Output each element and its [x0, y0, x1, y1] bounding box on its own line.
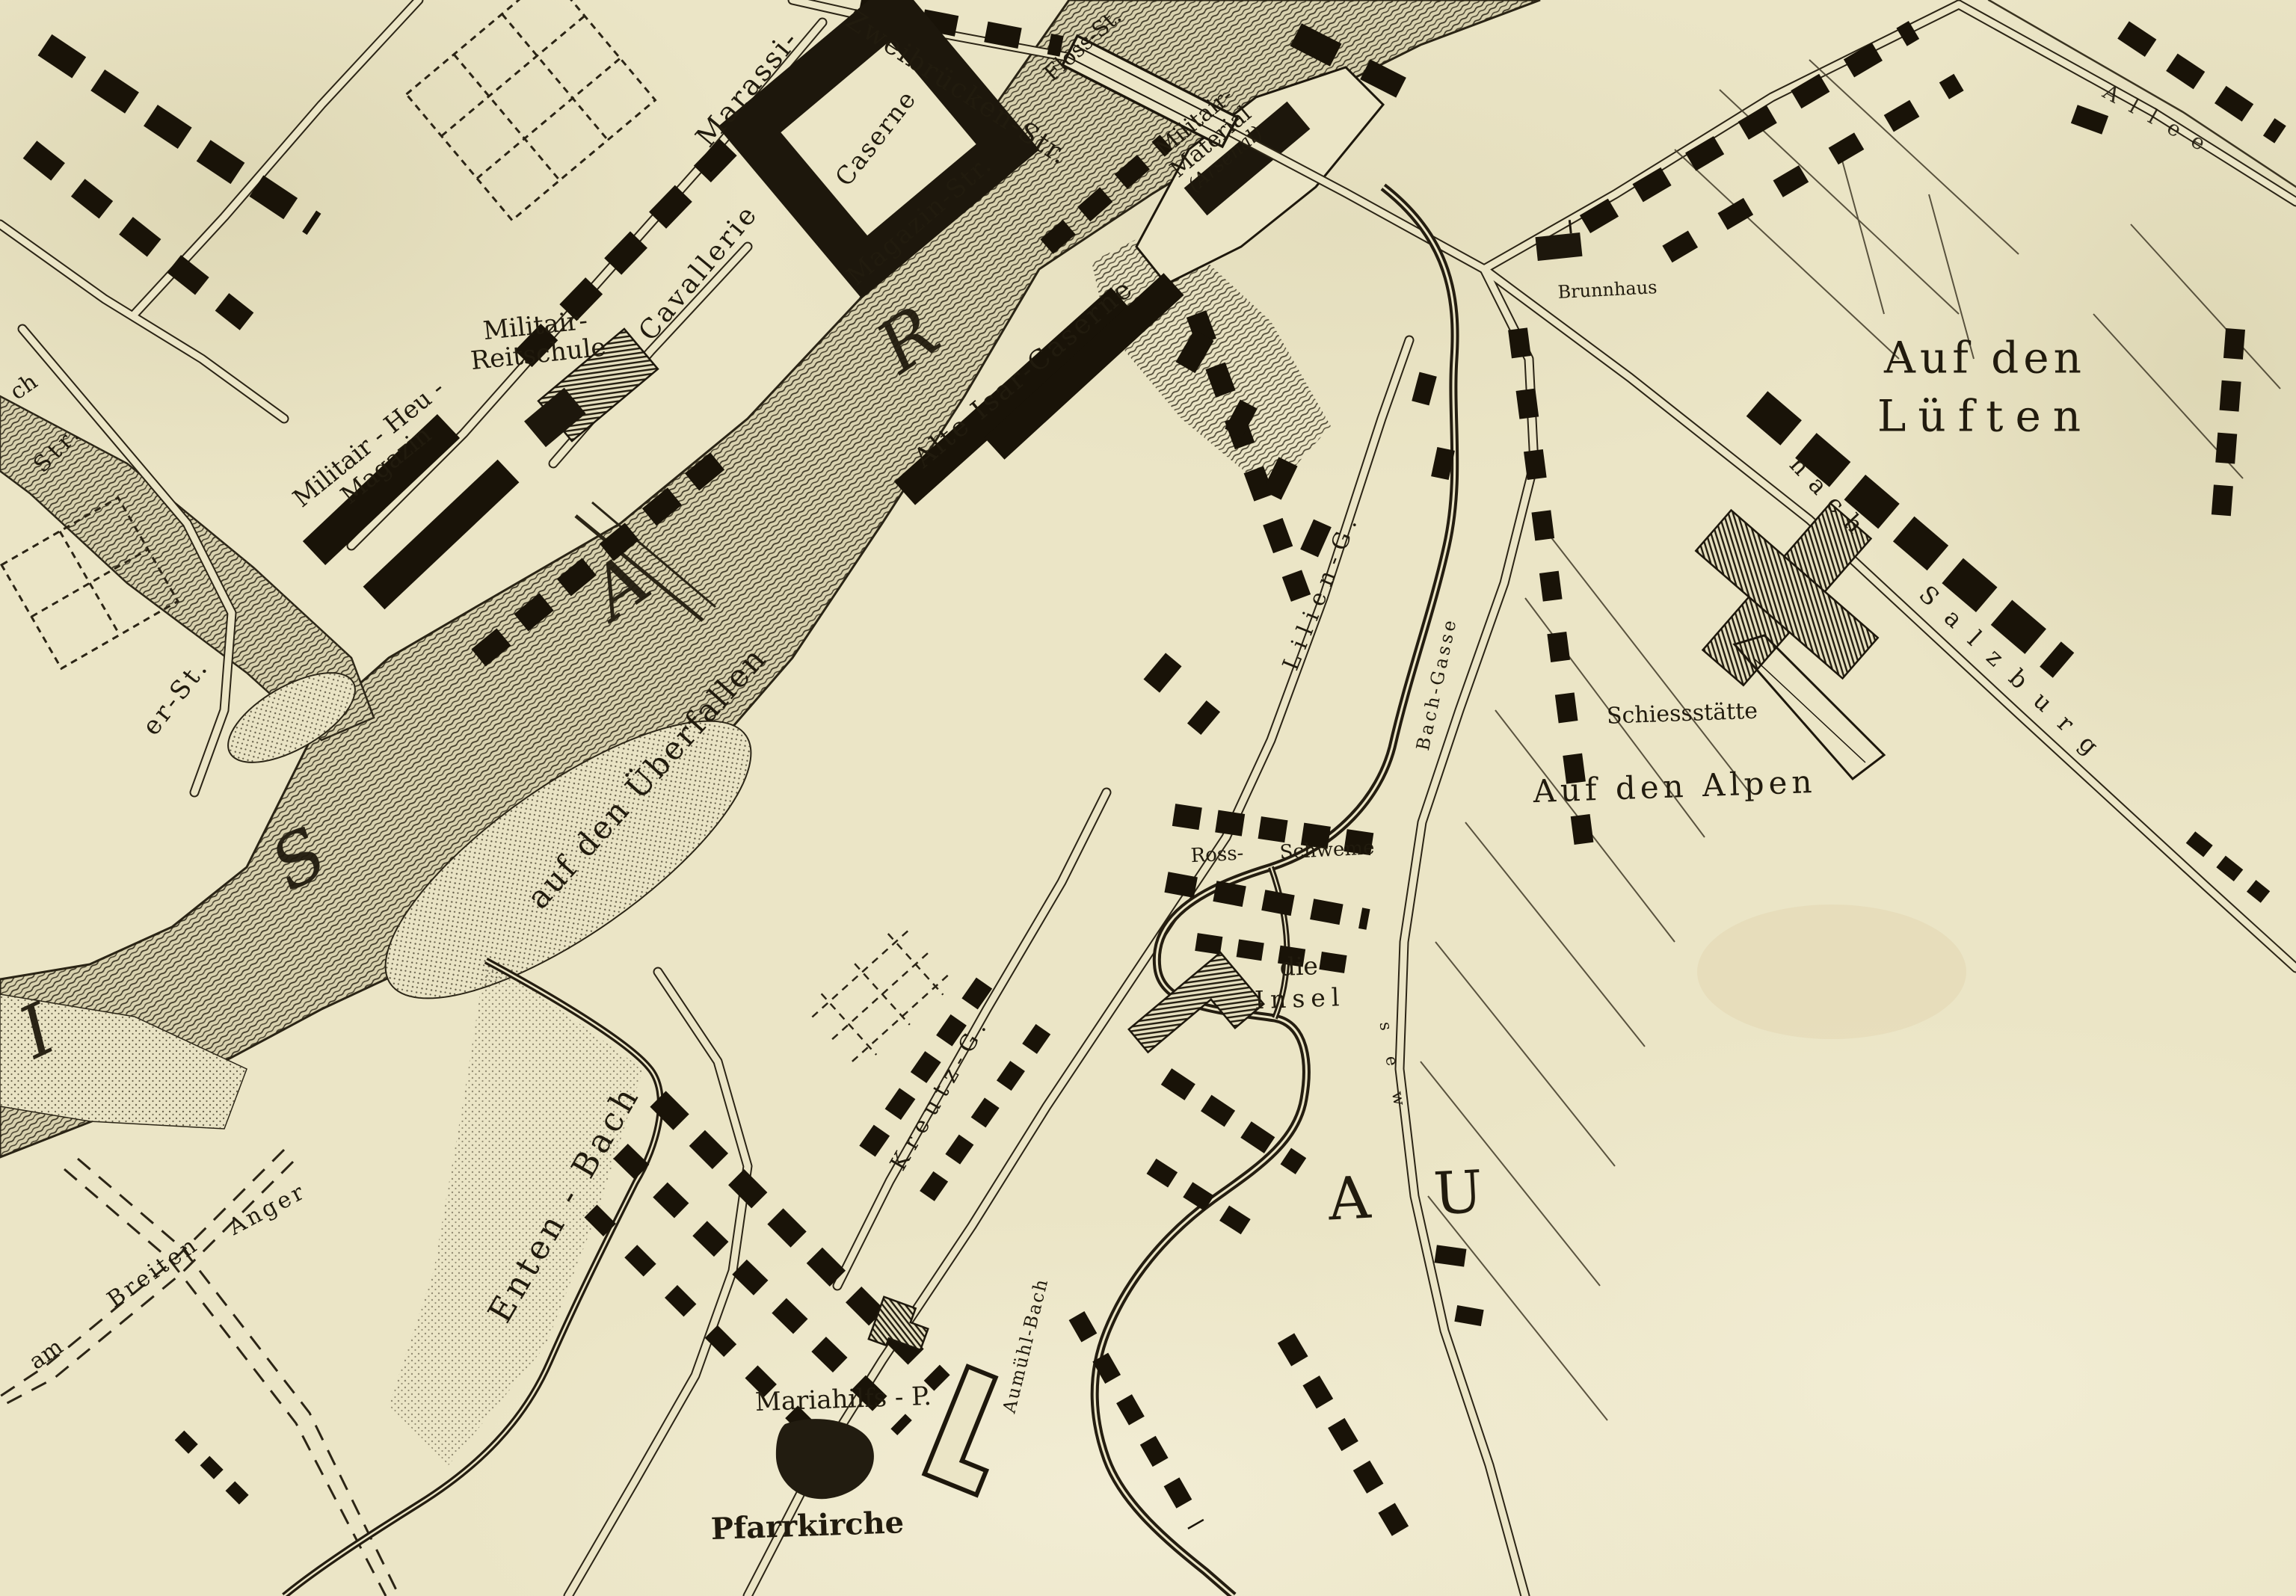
die-line: die [1253, 949, 1345, 985]
label-auf-den-lueften: Auf den Lüften [1877, 329, 2093, 446]
map-canvas: Marassi- Zweibrücken-Str. Floss-St. Mili… [0, 0, 2296, 1596]
label-pfarrkirche: Pfarrkirche [710, 1506, 905, 1547]
label-au-district: A U [1326, 1159, 1506, 1233]
lueften-line1: Auf den [1877, 329, 2093, 387]
label-ross: Ross- [1190, 843, 1244, 868]
insel-line: Insel [1254, 982, 1346, 1017]
lueften-line2: Lüften [1877, 387, 2093, 446]
label-mariahilfs-platz: Mariahilfs - P. [754, 1382, 932, 1417]
map-engraving [0, 0, 2296, 1596]
label-die-insel: die Insel [1253, 949, 1346, 1017]
label-schiessstaette: Schiessstätte [1606, 699, 1758, 730]
